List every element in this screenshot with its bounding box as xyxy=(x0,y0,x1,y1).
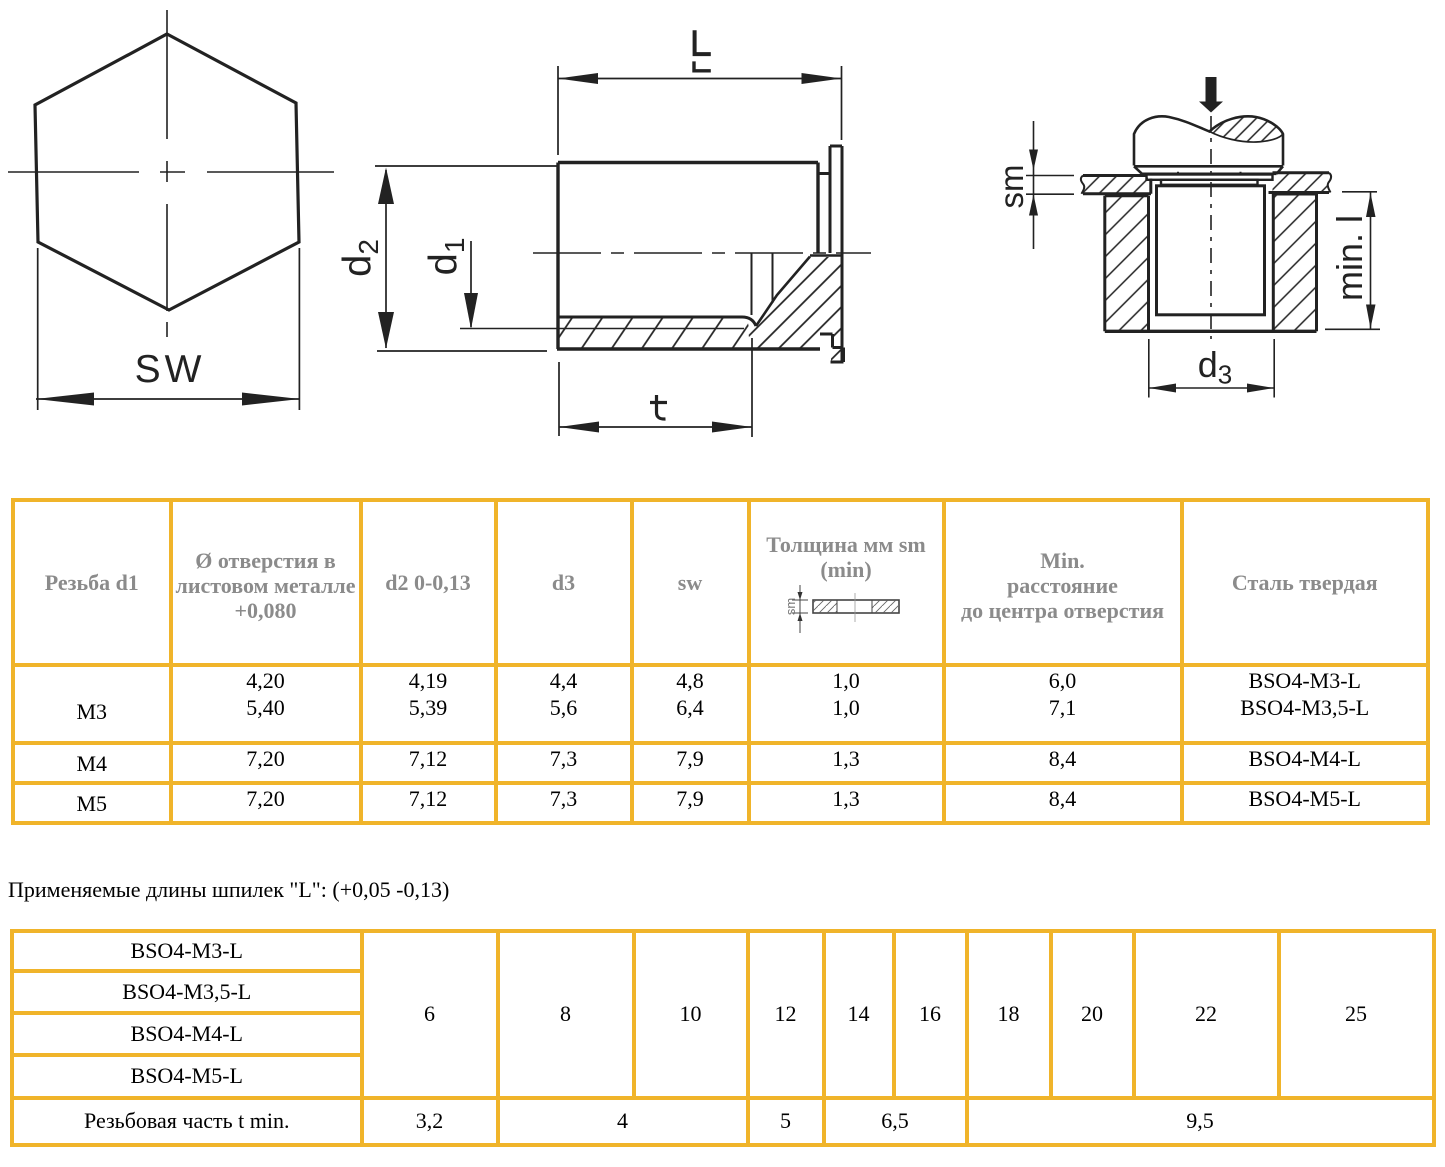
svg-text:min. l: min. l xyxy=(1329,215,1370,301)
svg-text:sm: sm xyxy=(993,165,1030,209)
svg-text:d1: d1 xyxy=(422,238,471,276)
svg-text:sm: sm xyxy=(786,598,798,615)
svg-text:d3: d3 xyxy=(1198,344,1233,390)
svg-text:SW: SW xyxy=(135,348,206,391)
svg-text:d2: d2 xyxy=(336,239,385,277)
